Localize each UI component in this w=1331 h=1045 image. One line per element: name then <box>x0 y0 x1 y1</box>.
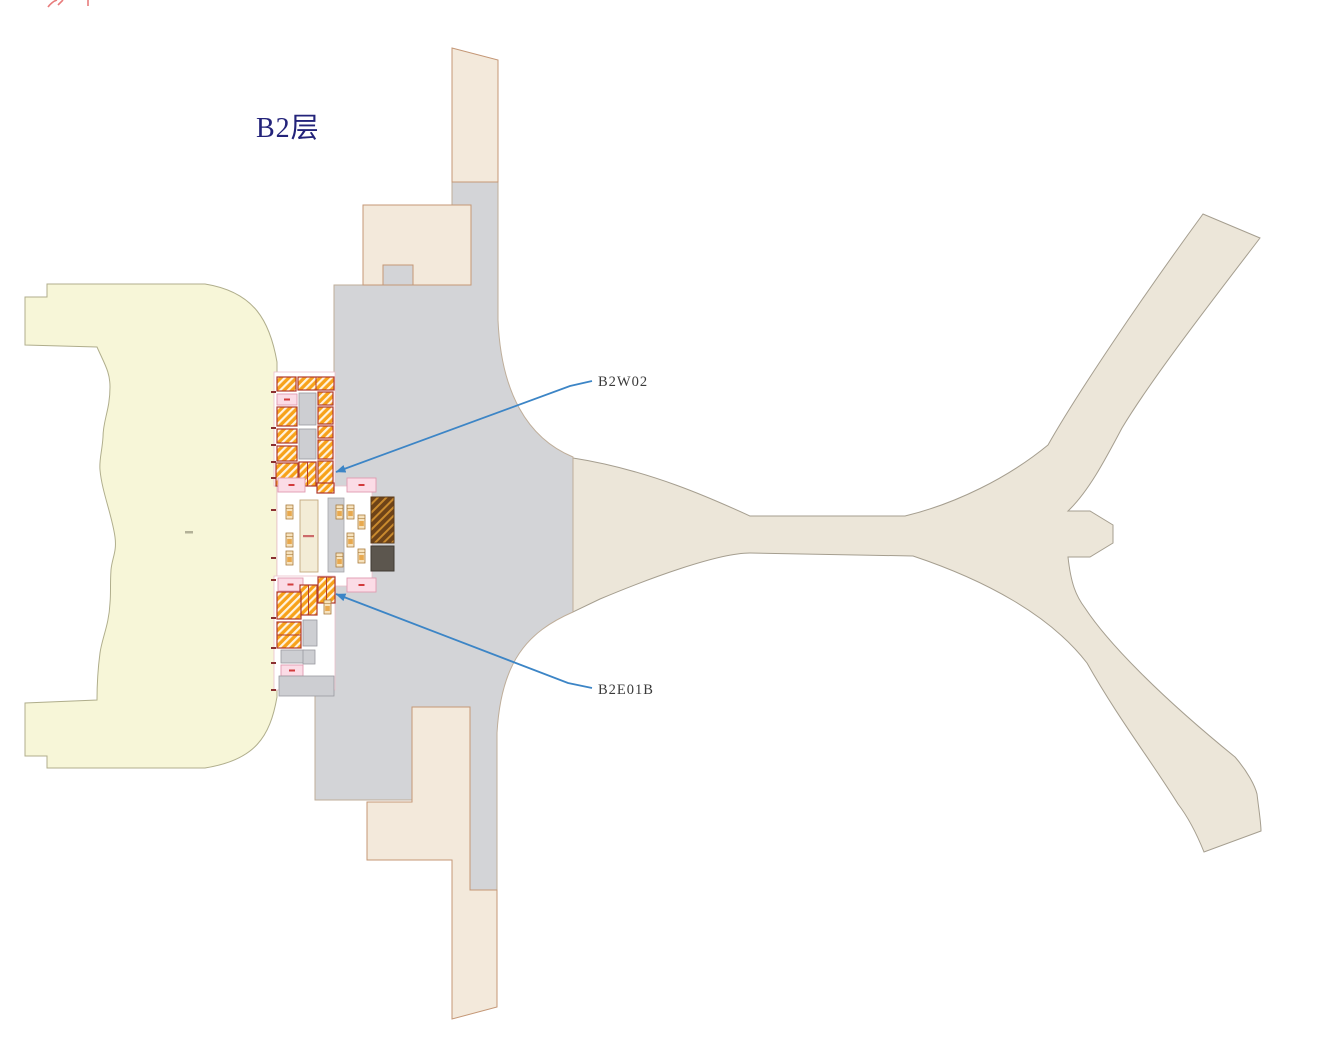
escalator-symbol-step <box>359 555 364 560</box>
west-apron-area <box>25 284 277 768</box>
escalator-symbol-step <box>287 511 292 516</box>
platform-tiny-label <box>303 535 314 537</box>
dimension-tick <box>271 391 276 393</box>
escalator-symbol-step <box>359 521 364 526</box>
room-hatch <box>277 377 296 391</box>
dimension-tick <box>271 617 276 619</box>
floor-title: B2层 <box>256 106 320 146</box>
room-hatch <box>318 407 333 424</box>
callout-label-b2w02: B2W02 <box>598 374 648 390</box>
dimension-tick <box>271 662 276 664</box>
dimension-tick <box>271 509 276 511</box>
room-hatch <box>318 461 333 485</box>
room-gray <box>303 650 315 664</box>
escalator-symbol-step <box>348 539 353 544</box>
room-hatch <box>277 407 297 426</box>
red-stroke-fragment <box>58 0 63 5</box>
room-hatch <box>277 429 297 443</box>
room-tiny-label <box>289 670 295 672</box>
red-stroke-fragment <box>48 0 57 7</box>
dimension-tick <box>271 647 276 649</box>
north-annex-block <box>363 205 471 285</box>
east-connector-pier <box>573 214 1261 852</box>
dimension-tick <box>271 579 276 581</box>
dimension-tick <box>271 557 276 559</box>
room-hatch <box>277 446 297 461</box>
floor-plan-page: B2W02 B2E01B B2层 <box>0 0 1331 1045</box>
floor-plan-svg: B2W02 B2E01B <box>0 0 1331 1045</box>
escalator-symbol-step <box>287 557 292 562</box>
dimension-tick <box>271 689 276 691</box>
room-hatch <box>317 483 334 493</box>
callout-label-b2e01b: B2E01B <box>598 682 654 698</box>
apron-tiny-label <box>185 531 193 534</box>
escalator-symbol-step <box>325 606 330 611</box>
room-dkhatch <box>371 497 394 543</box>
dimension-tick <box>271 461 276 463</box>
room-gray <box>303 620 317 646</box>
room-dkgray <box>371 546 394 571</box>
room-gray <box>299 393 316 425</box>
room-hatch <box>318 392 333 405</box>
room-tiny-label <box>288 584 294 586</box>
room-tiny-label <box>289 484 295 486</box>
north-annex-tower <box>452 48 498 182</box>
escalator-symbol-step <box>337 511 342 516</box>
truncated-red-annotation <box>48 0 88 7</box>
room-gray <box>279 676 334 696</box>
room-hatch <box>277 592 301 619</box>
room-hatch <box>318 440 333 459</box>
dimension-tick <box>271 427 276 429</box>
room-tiny-label <box>359 584 365 586</box>
dimension-tick <box>271 444 276 446</box>
escalator-symbol-step <box>348 511 353 516</box>
dimension-tick <box>271 477 276 479</box>
room-gray <box>299 429 316 459</box>
room-tiny-label <box>284 399 290 401</box>
room-gray <box>281 650 304 663</box>
room-hatch <box>318 426 333 438</box>
escalator-symbol-step <box>287 539 292 544</box>
escalator-symbol-step <box>337 559 342 564</box>
room-tiny-label <box>359 484 365 486</box>
north-annex-notch <box>383 265 413 285</box>
